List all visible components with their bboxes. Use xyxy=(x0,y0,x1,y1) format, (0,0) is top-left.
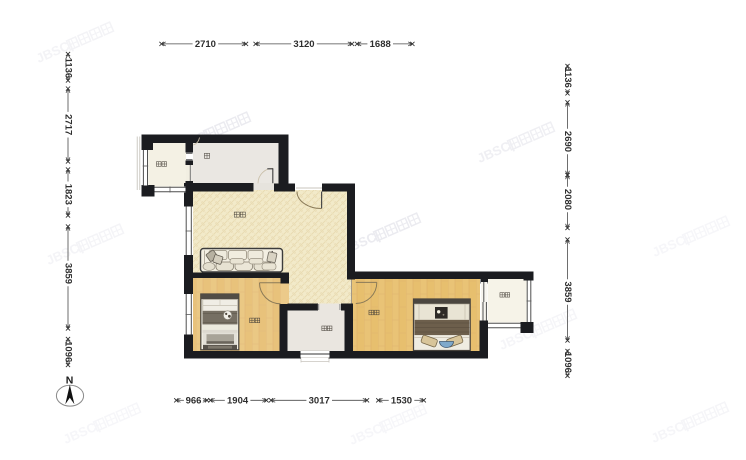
svg-text:3120: 3120 xyxy=(293,39,314,50)
svg-text:3859: 3859 xyxy=(63,263,74,284)
svg-text:1688: 1688 xyxy=(370,39,391,50)
svg-text:1530: 1530 xyxy=(391,396,412,407)
svg-text:3859: 3859 xyxy=(562,281,573,302)
svg-text:1823: 1823 xyxy=(63,184,74,205)
svg-text:3017: 3017 xyxy=(309,396,330,407)
svg-text:2080: 2080 xyxy=(562,189,573,210)
svg-text:1096: 1096 xyxy=(562,352,573,373)
svg-text:N: N xyxy=(66,375,74,387)
svg-text:2690: 2690 xyxy=(562,131,573,152)
svg-text:1136: 1136 xyxy=(562,67,573,88)
svg-text:2717: 2717 xyxy=(63,114,74,135)
svg-text:966: 966 xyxy=(186,396,202,407)
svg-text:2710: 2710 xyxy=(195,39,216,50)
svg-text:1904: 1904 xyxy=(227,396,249,407)
svg-text:1136: 1136 xyxy=(63,58,74,79)
svg-text:1096: 1096 xyxy=(63,341,74,362)
